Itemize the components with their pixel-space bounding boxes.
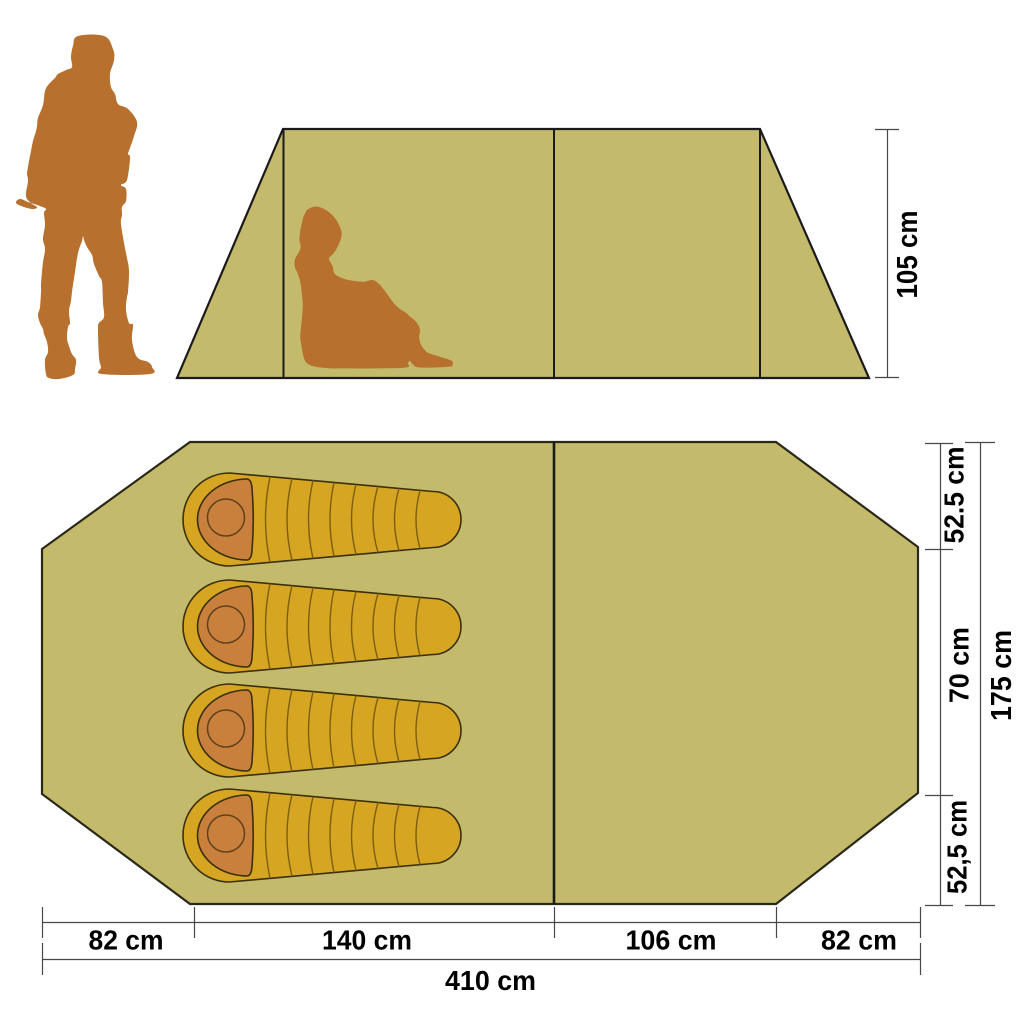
svg-text:106 cm: 106 cm xyxy=(626,925,717,956)
svg-text:175 cm: 175 cm xyxy=(986,630,1018,721)
svg-text:140 cm: 140 cm xyxy=(322,925,412,956)
svg-text:52,5 cm: 52,5 cm xyxy=(942,800,973,894)
svg-text:410 cm: 410 cm xyxy=(445,965,536,996)
svg-text:52.5 cm: 52.5 cm xyxy=(939,447,970,544)
svg-text:82 cm: 82 cm xyxy=(89,925,164,956)
svg-text:105 cm: 105 cm xyxy=(892,211,924,299)
svg-text:70 cm: 70 cm xyxy=(944,627,975,703)
svg-text:82 cm: 82 cm xyxy=(821,925,897,956)
